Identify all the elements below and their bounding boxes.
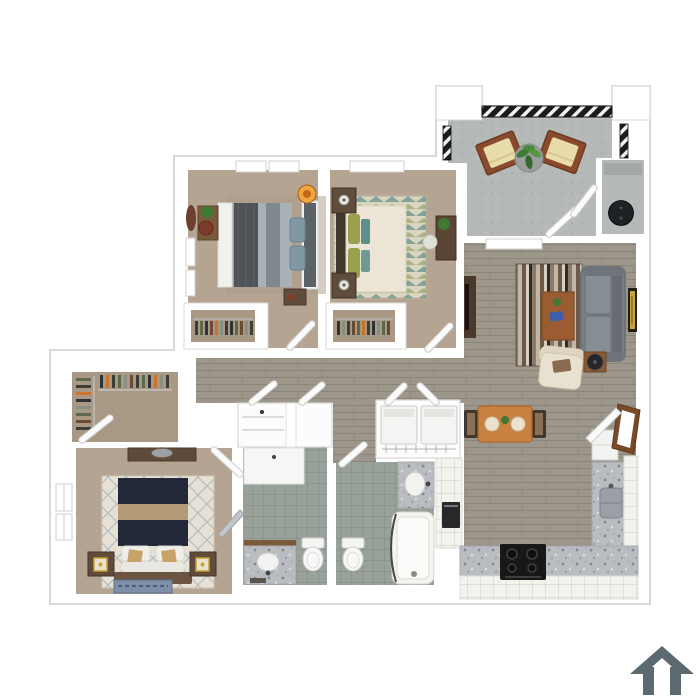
bedroom2-bed-bench [218,203,232,287]
sofa-cushion-2 [585,316,611,356]
patio-railing-top [482,106,612,117]
storage-shelf [604,163,642,175]
patio-railing-left [443,126,451,160]
dining-centerpiece [501,416,509,424]
floor-plan-svg [0,0,700,700]
bath1-vanity [244,540,296,584]
range [500,544,546,580]
hallway-floor-planks [196,358,464,403]
bedroom3-pillow-accent-1 [361,219,370,244]
bedroom2-window-1 [236,161,266,172]
bedroom3-closet-clothes [337,321,390,335]
house-outline-logo [630,646,694,695]
dining-area [464,406,546,442]
bedroom2-headboard-pad [304,203,316,287]
bath1-sink [257,553,279,571]
master-nightstand-right [190,552,216,576]
laundry-closet [376,400,460,458]
bath2-faucet [426,482,431,487]
bedroom2-pillow-1 [290,218,305,242]
master-duvet-band [118,504,188,520]
bedroom2-vase [288,294,294,300]
bath1-faucet [266,571,271,576]
bath2-tub-faucet [411,571,417,577]
patio-post-left [436,86,482,120]
master-bed [114,478,192,584]
bath2-toilet [342,538,364,571]
linen-closet [238,403,332,447]
bedroom2-side-window-1 [186,238,195,266]
patio-post-right [612,86,650,120]
bedroom3-pillow-accent-2 [361,250,370,272]
bedroom3-nightstand-bottom [332,273,356,298]
bath2-vanity [398,462,434,508]
master-dresser-mirror [151,448,173,458]
bedroom2-bed-runner [266,203,280,287]
patio-floor-texture [448,117,612,236]
bath1-shower [244,448,304,484]
bedroom3-pillow-1 [348,214,360,244]
tv [465,284,469,330]
armchair [536,345,586,391]
bedroom3-desk-chair [423,235,437,249]
coffee-table-plant [553,298,561,306]
bedroom2-window-2 [269,161,299,172]
kitchen-sink [600,484,622,519]
floor-plan-image [0,0,700,700]
sofa-cushion-1 [585,274,611,314]
linen-shelf-item [260,410,264,414]
bedroom3-window [350,161,404,172]
bedroom3-closet [326,303,406,349]
bedroom2-pillow-2 [290,246,305,270]
bath2-tub [391,512,434,584]
living-window [486,239,542,249]
side-table [584,352,606,372]
sofa [580,266,626,362]
bedroom2-nightstand [284,289,306,305]
bath2-sink [405,472,425,496]
water-heater [609,201,634,226]
place-setting-1 [485,417,499,431]
place-setting-2 [511,417,525,431]
bath1-shower-drain [272,455,276,459]
bedroom2-closet [184,303,268,349]
bedroom2-wall-mirror [186,205,196,231]
coffee-table-book [550,311,564,322]
bath1-toilet [302,538,324,571]
bedroom3-nightstand-top [332,188,356,213]
wall-art [628,288,637,332]
bedroom2-desk-plant [201,206,213,218]
patio-potted-plant [515,144,543,172]
master-nightstand-left [88,552,114,576]
bedroom2-desk-chair [199,221,213,235]
bedroom3-desk-plant [438,218,450,230]
bedroom2-side-window-2 [186,270,195,296]
patio-railing-right [620,124,628,158]
